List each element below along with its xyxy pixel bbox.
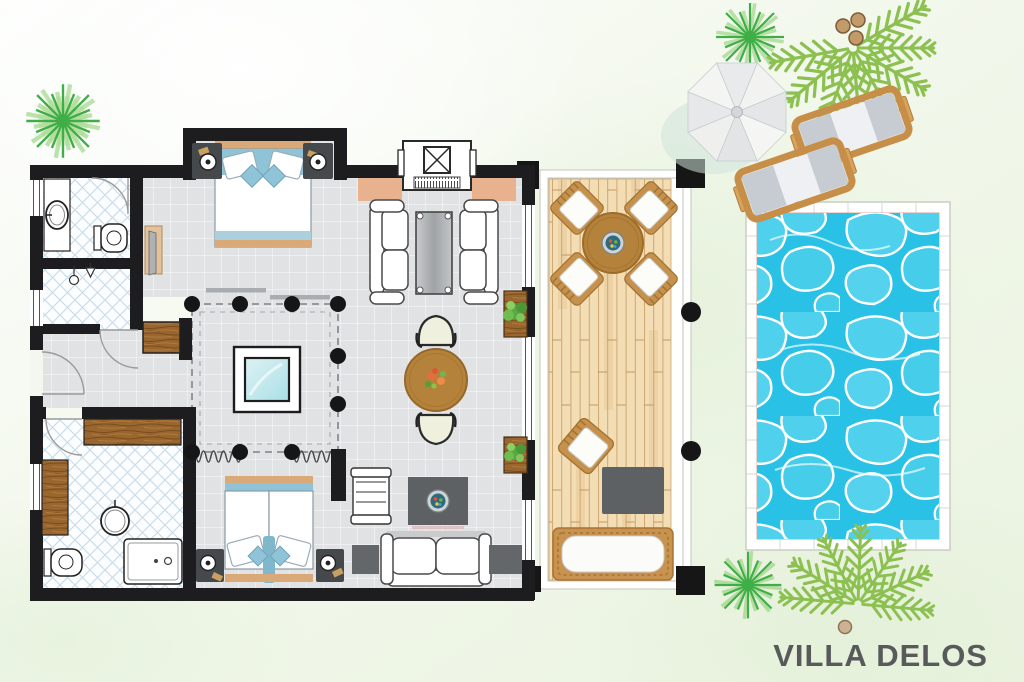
skylight-water-feature — [234, 347, 300, 412]
coffee-table — [416, 212, 452, 294]
nightstand-left — [192, 143, 222, 179]
console-table — [408, 477, 468, 529]
glass-door-3 — [522, 500, 535, 560]
nightstand-right-2 — [316, 549, 344, 582]
screenshot-root: VILLA DELOS — [0, 0, 1024, 682]
swimming-pool — [746, 202, 950, 550]
nightstand-left-2 — [196, 549, 224, 582]
shower-room-floor — [42, 269, 130, 330]
planter-1 — [503, 291, 527, 337]
glass-door-2 — [522, 337, 535, 440]
villa-title: VILLA DELOS — [773, 638, 988, 673]
wardrobe — [143, 322, 180, 353]
washbasin — [46, 201, 68, 229]
double-bed — [215, 141, 311, 247]
side-table-right — [489, 545, 522, 574]
rug-right — [472, 178, 516, 201]
glass-door-1 — [522, 205, 535, 287]
sofa-right — [460, 200, 498, 304]
wall-tv — [145, 226, 162, 275]
twin-beds — [225, 476, 313, 583]
entry-door-opening — [30, 350, 43, 396]
slat-bench — [351, 468, 391, 524]
sofa-left — [370, 200, 408, 304]
sofa-shadow — [386, 531, 486, 537]
wooden-deck — [517, 159, 705, 595]
toilet — [94, 224, 127, 252]
rug-left — [358, 178, 402, 201]
wood-vanity — [84, 419, 181, 445]
wood-counter-left — [42, 460, 68, 535]
deck-daybed — [553, 528, 673, 580]
planter-2 — [504, 437, 527, 473]
entrance-hall — [143, 322, 180, 353]
villa-floor-plan: VILLA DELOS — [0, 0, 1024, 682]
fireplace — [398, 141, 476, 190]
side-table-left — [352, 545, 379, 574]
shower-tub — [124, 539, 182, 584]
deck-mat — [602, 467, 664, 514]
toilet-2 — [44, 549, 82, 576]
nightstand-right — [303, 143, 333, 179]
